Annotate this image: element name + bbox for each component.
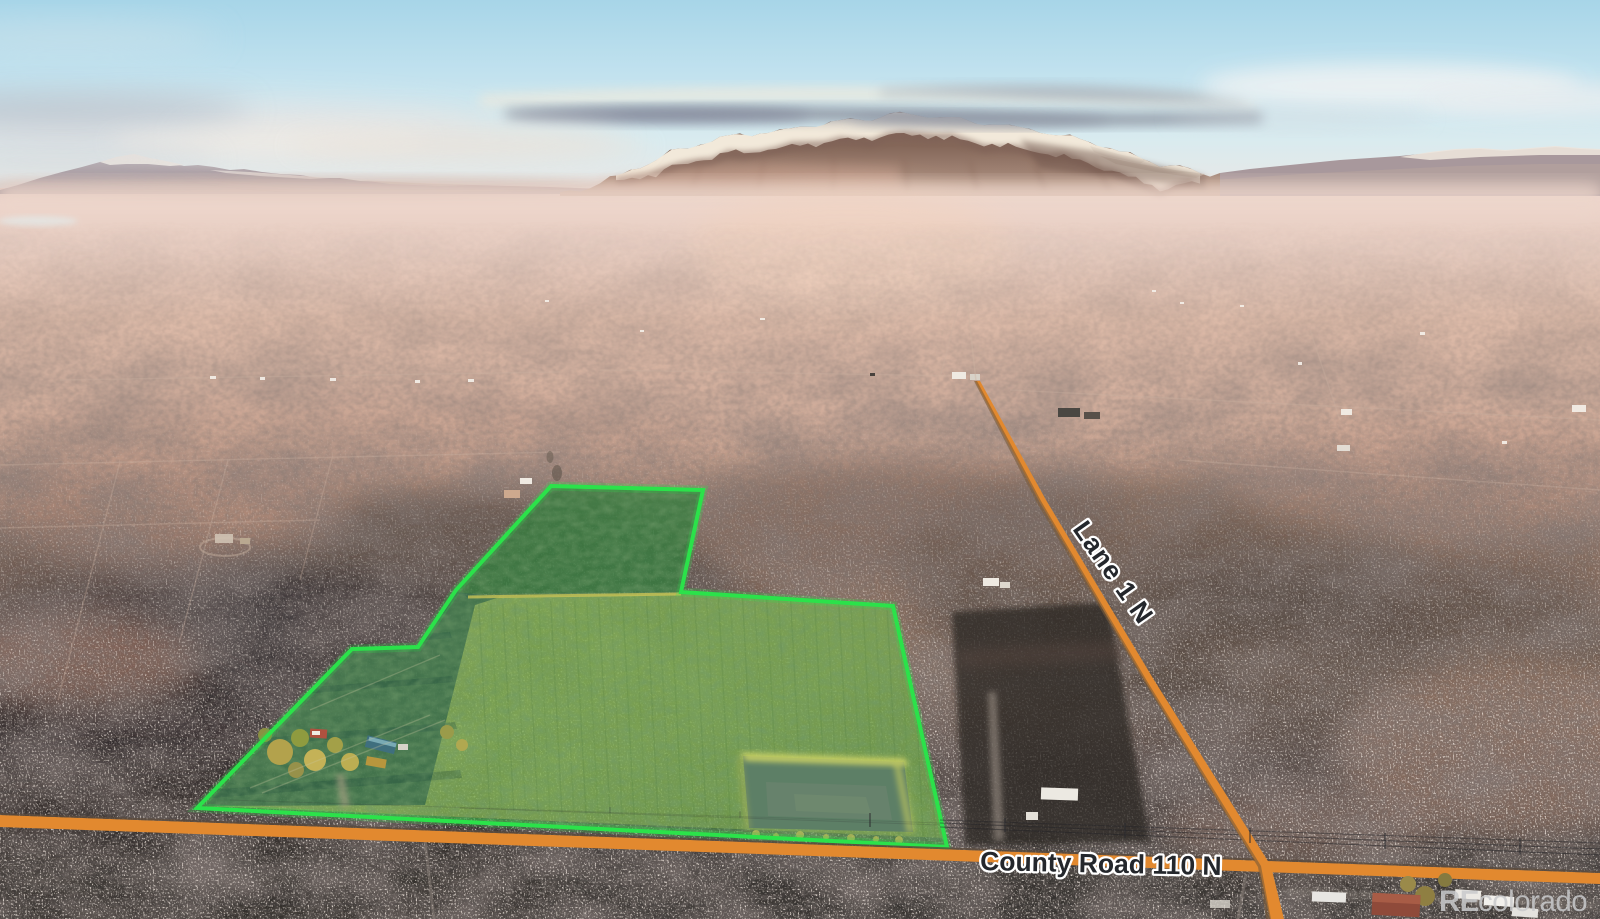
svg-text:RE: RE: [1439, 885, 1479, 918]
svg-text:County Road 110 N: County Road 110 N: [980, 846, 1222, 881]
svg-text:colorado: colorado: [1478, 885, 1587, 918]
